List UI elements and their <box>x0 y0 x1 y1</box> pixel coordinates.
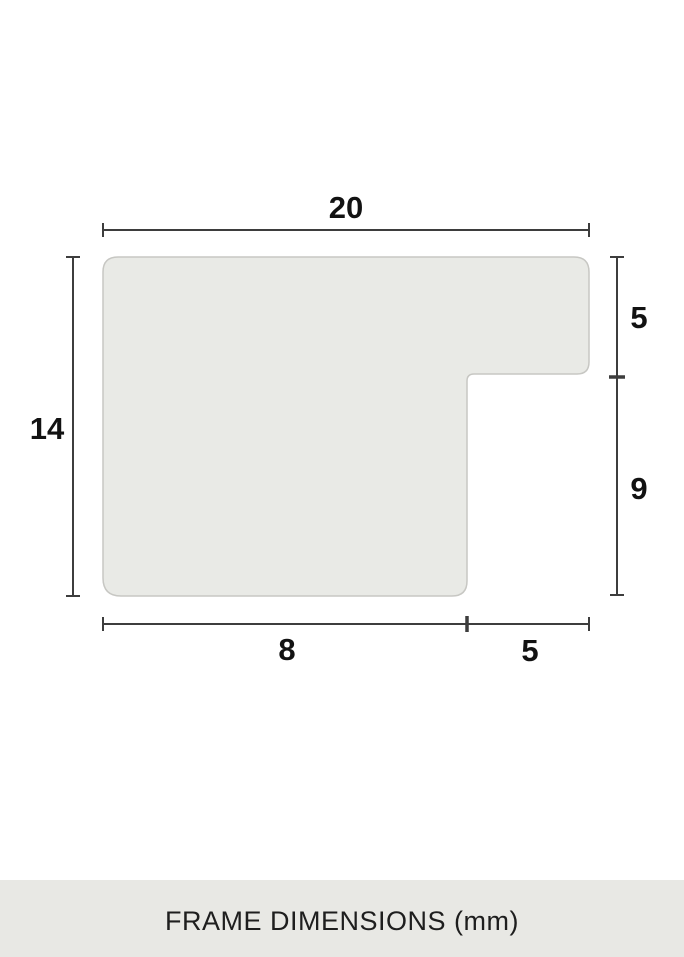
frame-profile-shape <box>103 257 589 596</box>
dimension-label-right-upper: 5 <box>630 300 647 335</box>
dimension-label-bottom-outer: 5 <box>521 633 538 668</box>
dimension-label-right-lower: 9 <box>630 471 647 506</box>
footer-band: FRAME DIMENSIONS (mm) <box>0 880 684 957</box>
dimension-right-heights <box>609 257 625 595</box>
dimension-bottom-widths <box>103 616 589 632</box>
page: 20 14 5 9 8 <box>0 0 684 957</box>
dimension-left-height <box>66 257 80 596</box>
dimension-label-top-width: 20 <box>329 190 363 225</box>
dimension-label-left-height: 14 <box>30 411 65 446</box>
frame-dimension-diagram: 20 14 5 9 8 <box>0 0 684 880</box>
diagram-canvas: 20 14 5 9 8 <box>0 0 684 880</box>
dimension-top-width <box>103 223 589 237</box>
footer-caption: FRAME DIMENSIONS (mm) <box>165 900 519 937</box>
dimension-label-bottom-inner: 8 <box>278 632 295 667</box>
